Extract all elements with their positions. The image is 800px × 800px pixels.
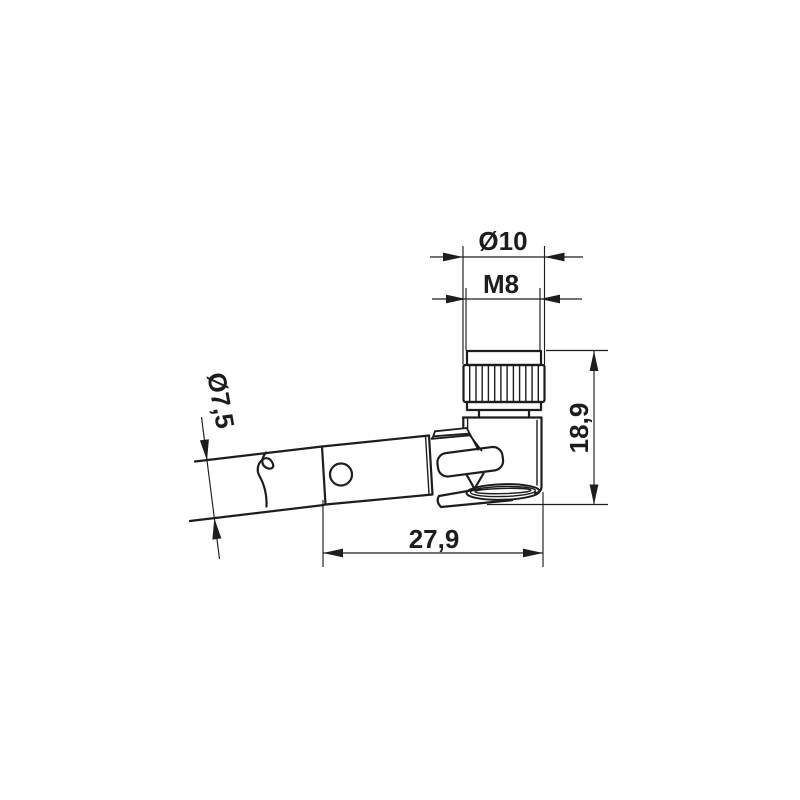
crimp-inspection-hole bbox=[330, 464, 352, 486]
m8-label: M8 bbox=[483, 269, 519, 299]
connector-body-group bbox=[190, 351, 545, 521]
neck-step bbox=[479, 410, 529, 418]
d10-arrow-right bbox=[545, 253, 565, 262]
release-latch bbox=[436, 446, 504, 478]
cable-arrow-top bbox=[200, 439, 209, 460]
length-label: 27,9 bbox=[409, 524, 460, 554]
cable-diameter-label: Ø7,5 bbox=[201, 370, 240, 431]
cable-bottom-edge bbox=[190, 505, 324, 521]
cable-top-edge bbox=[195, 447, 322, 462]
dimension-cable-diameter: Ø7,5 bbox=[200, 370, 241, 559]
d10-arrow-left bbox=[443, 253, 463, 262]
connector-dimension-drawing: Ø10 M8 18,9 27,9 bbox=[0, 0, 800, 800]
sleeve-outline bbox=[322, 436, 433, 505]
height-arrow-up bbox=[590, 351, 599, 371]
knurl-lines bbox=[470, 365, 539, 402]
height-arrow-down bbox=[590, 485, 599, 505]
nut-top-cap bbox=[467, 351, 541, 365]
dimension-thread: M8 bbox=[432, 269, 582, 351]
d10-extension-lines bbox=[463, 246, 545, 365]
nut-lower-band bbox=[467, 402, 541, 410]
dimension-height: 18,9 bbox=[487, 351, 608, 505]
length-arrow-right bbox=[523, 549, 543, 558]
m8-arrow-right bbox=[540, 295, 560, 304]
height-label: 18,9 bbox=[564, 403, 594, 454]
d10-label: Ø10 bbox=[478, 226, 527, 256]
clamp-facets bbox=[432, 428, 482, 451]
cable-arrow-bottom bbox=[212, 518, 221, 539]
length-arrow-left bbox=[323, 549, 343, 558]
cable-break-squiggle bbox=[258, 453, 273, 507]
dimension-length: 27,9 bbox=[323, 492, 543, 567]
technical-drawing-page: Ø10 M8 18,9 27,9 bbox=[0, 0, 800, 800]
